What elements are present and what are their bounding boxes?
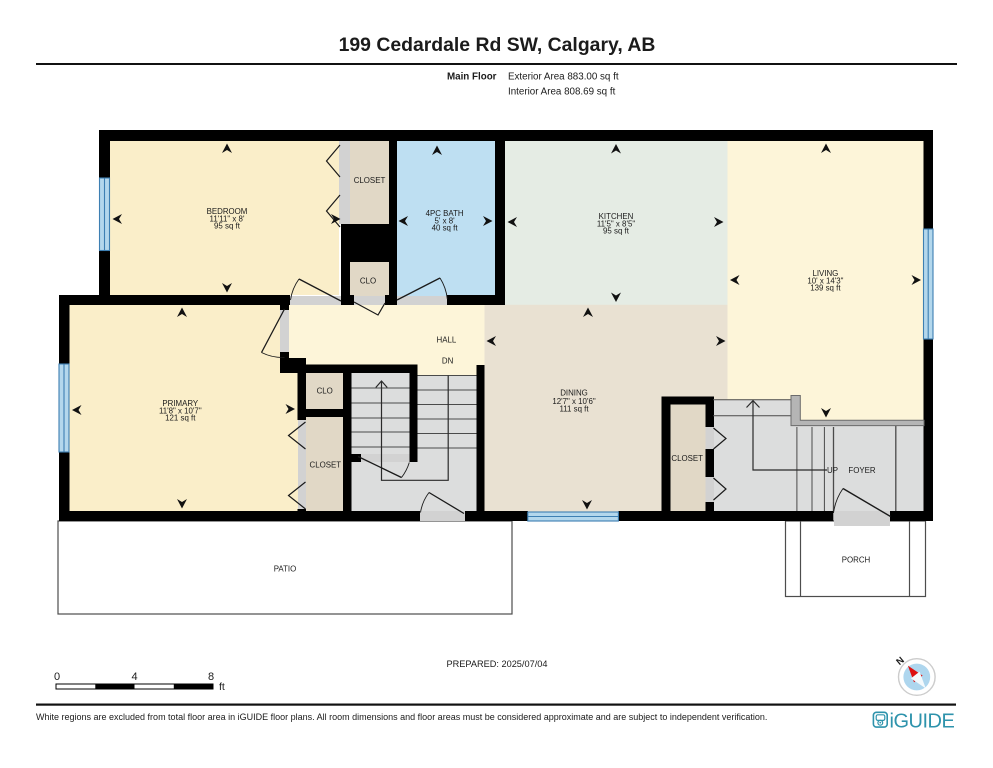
svg-text:FOYER: FOYER <box>848 466 875 475</box>
svg-text:ft: ft <box>219 681 225 693</box>
svg-text:Interior Area 808.69 sq ft: Interior Area 808.69 sq ft <box>508 87 616 98</box>
svg-text:DN: DN <box>442 357 454 366</box>
svg-text:CLOSET: CLOSET <box>310 460 342 469</box>
svg-text:CLOSET: CLOSET <box>671 454 703 463</box>
svg-text:iGUIDE: iGUIDE <box>890 710 955 732</box>
svg-text:White regions are excluded fro: White regions are excluded from total fl… <box>36 712 767 722</box>
svg-text:8: 8 <box>208 671 214 683</box>
svg-text:PRIMARY11'8" x 10'7"121 sq ft: PRIMARY11'8" x 10'7"121 sq ft <box>159 399 202 423</box>
svg-text:PORCH: PORCH <box>842 556 871 565</box>
svg-text:CLOSET: CLOSET <box>354 176 386 185</box>
svg-text:Main Floor: Main Floor <box>447 72 497 83</box>
svg-text:CLO: CLO <box>317 387 333 396</box>
svg-text:HALL: HALL <box>437 336 457 345</box>
svg-text:0: 0 <box>54 671 60 683</box>
svg-text:CLO: CLO <box>360 277 376 286</box>
svg-text:LIVING10' x 14'3"139 sq ft: LIVING10' x 14'3"139 sq ft <box>807 269 843 293</box>
svg-text:Exterior Area 883.00 sq ft: Exterior Area 883.00 sq ft <box>508 72 619 83</box>
svg-text:PATIO: PATIO <box>274 565 297 574</box>
svg-text:4: 4 <box>131 671 137 683</box>
svg-text:UP: UP <box>827 466 838 475</box>
svg-text:PREPARED: 2025/07/04: PREPARED: 2025/07/04 <box>447 659 548 669</box>
svg-text:199 Cedardale Rd SW, Calgary,: 199 Cedardale Rd SW, Calgary, AB <box>339 34 656 56</box>
